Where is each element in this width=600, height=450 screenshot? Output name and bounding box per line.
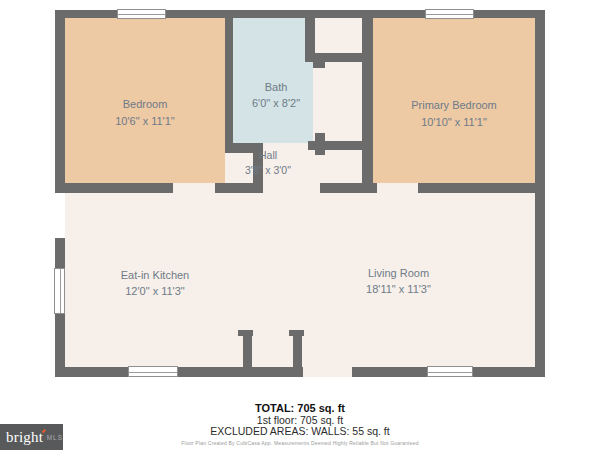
logo-brand-text: bright: [6, 429, 43, 446]
wall-main-horizontal-b: [215, 183, 263, 193]
wall-main-horizontal-d: [418, 183, 535, 193]
room-dimensions: 6'0" x 8'2": [233, 96, 319, 112]
logo-suffix-text: MLS: [47, 434, 63, 441]
wall-alcove-stub-left: [243, 333, 252, 367]
room-dimensions: 10'10" x 11'1": [373, 114, 535, 131]
wall-main-horizontal-c: [320, 183, 377, 193]
wall-exterior-right: [535, 10, 545, 377]
room-primary-label: Primary Bedroom 10'10" x 11'1": [373, 97, 535, 130]
room-bedroom-label: Bedroom 10'6" x 11'1": [65, 96, 225, 129]
wall-alcove-stub-right: [293, 333, 302, 367]
room-name: Primary Bedroom: [373, 97, 535, 114]
window-kitchen-bottom: [128, 366, 178, 377]
wall-bedroom-right: [225, 18, 233, 143]
room-name: Bedroom: [65, 96, 225, 113]
room-living-label: Living Room 18'11" x 11'3": [316, 266, 481, 297]
logo-star-icon: [42, 429, 46, 433]
wall-bath-right-upper: [305, 17, 315, 57]
room-name: Hall: [226, 148, 310, 163]
excluded-area-text: EXCLUDED AREAS: WALLS: 55 sq. ft: [0, 426, 600, 437]
wall-exterior-bottom-a: [55, 367, 303, 377]
room-dimensions: 3'8" x 3'0": [226, 163, 310, 178]
wall-main-horizontal-a: [55, 183, 173, 193]
room-name: Bath: [233, 80, 319, 96]
area-summary: TOTAL: 705 sq. ft 1st floor: 705 sq. ft …: [0, 402, 600, 446]
room-dimensions: 10'6" x 11'1": [65, 113, 225, 130]
floor-plan-page: Bedroom 10'6" x 11'1" Bath 6'0" x 8'2" P…: [0, 0, 600, 450]
window-kitchen-left: [54, 268, 65, 314]
first-floor-area-text: 1st floor: 705 sq. ft: [0, 415, 600, 426]
bright-mls-logo: bright MLS: [0, 424, 63, 450]
wall-exterior-left-a: [55, 10, 65, 193]
room-name: Living Room: [316, 266, 481, 282]
wall-primary-left: [362, 18, 373, 193]
room-hall-label: Hall 3'8" x 3'0": [226, 148, 310, 178]
room-dimensions: 18'11" x 11'3": [316, 282, 481, 298]
window-primary-top: [425, 9, 474, 19]
disclaimer-text: Floor Plan Created By CubiCasa App. Meas…: [0, 440, 600, 446]
room-bath-label: Bath 6'0" x 8'2": [233, 80, 319, 111]
window-living-bottom: [427, 366, 473, 377]
wall-alcove-cap-right: [289, 330, 304, 336]
room-name: Eat-in Kitchen: [75, 268, 235, 284]
door-opening-left: [55, 193, 65, 238]
window-bedroom-top: [117, 9, 166, 19]
wall-alcove-cap-left: [238, 330, 253, 336]
room-dimensions: 12'0" x 11'3": [75, 284, 235, 300]
room-kitchen-label: Eat-in Kitchen 12'0" x 11'3": [75, 268, 235, 299]
